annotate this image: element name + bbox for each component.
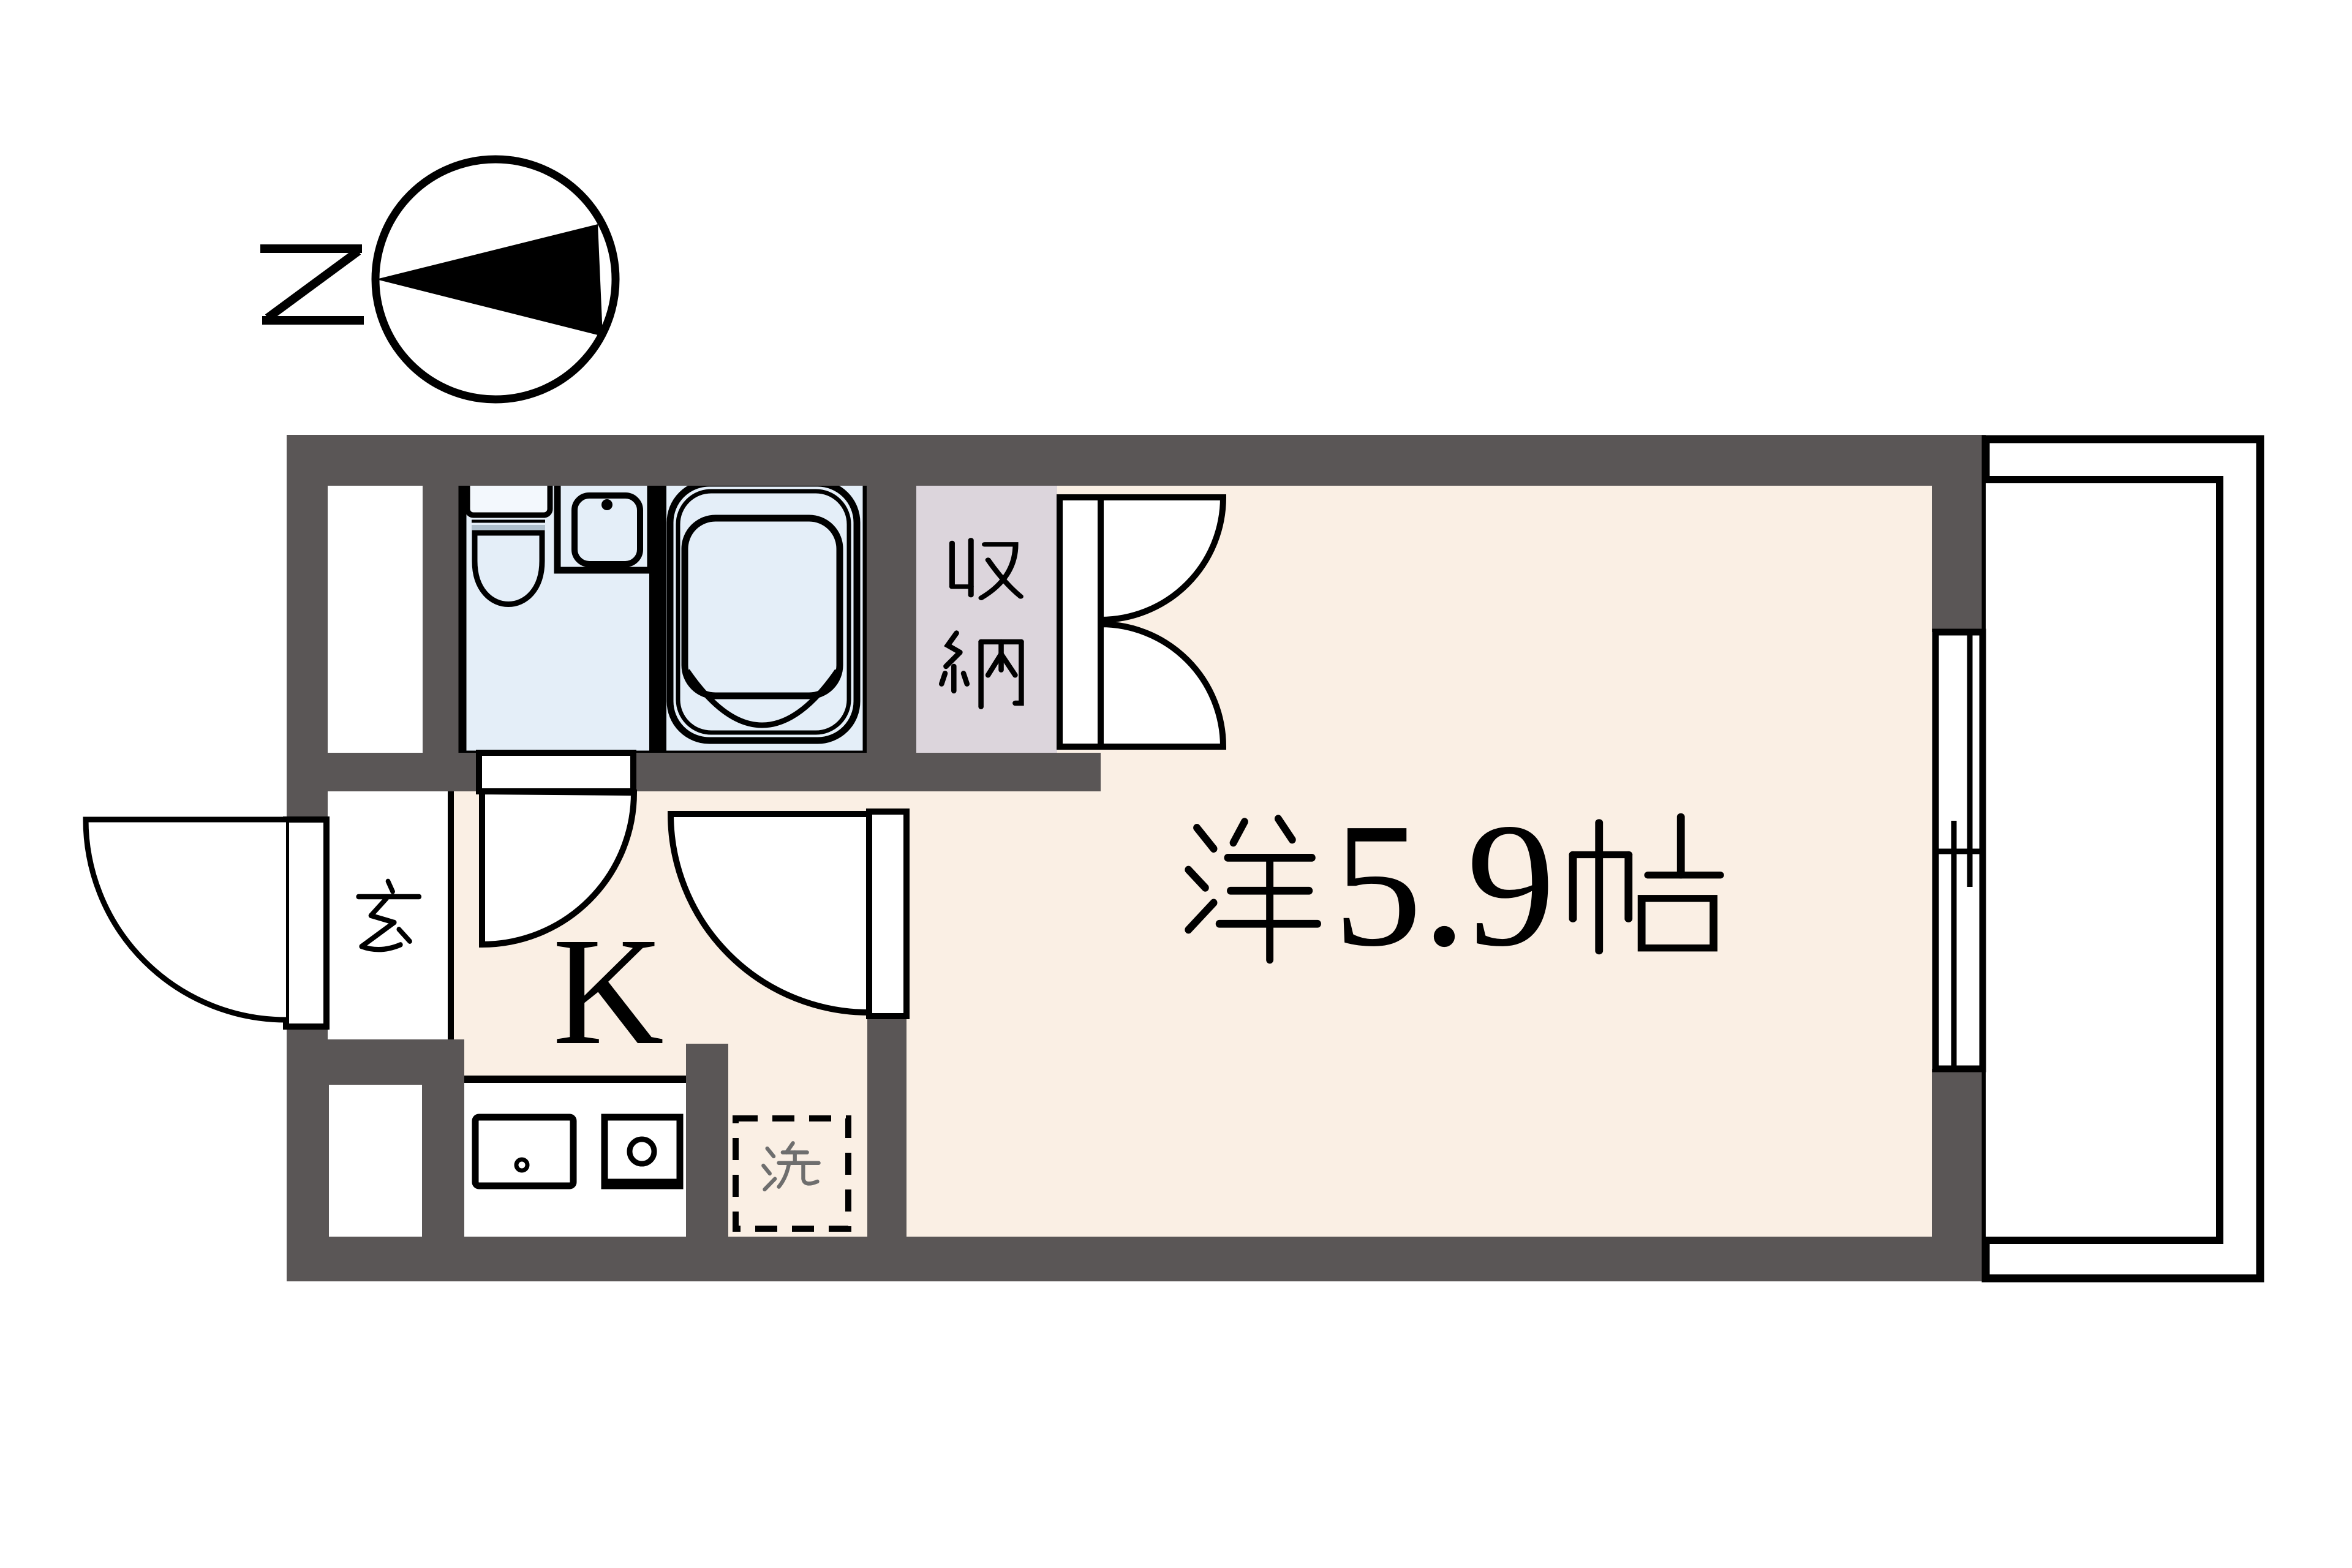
svg-text:5.9: 5.9 bbox=[1333, 786, 1556, 983]
svg-text:K: K bbox=[552, 905, 664, 1077]
